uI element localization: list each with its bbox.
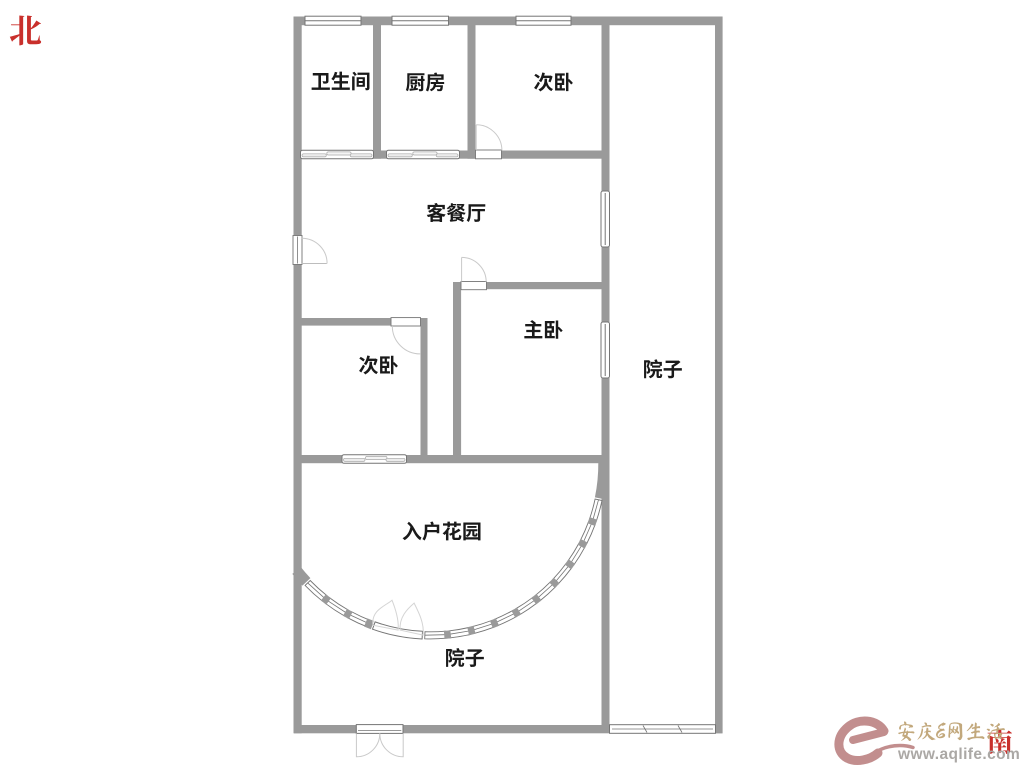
svg-text:www.aqlife.com: www.aqlife.com xyxy=(897,746,1020,763)
